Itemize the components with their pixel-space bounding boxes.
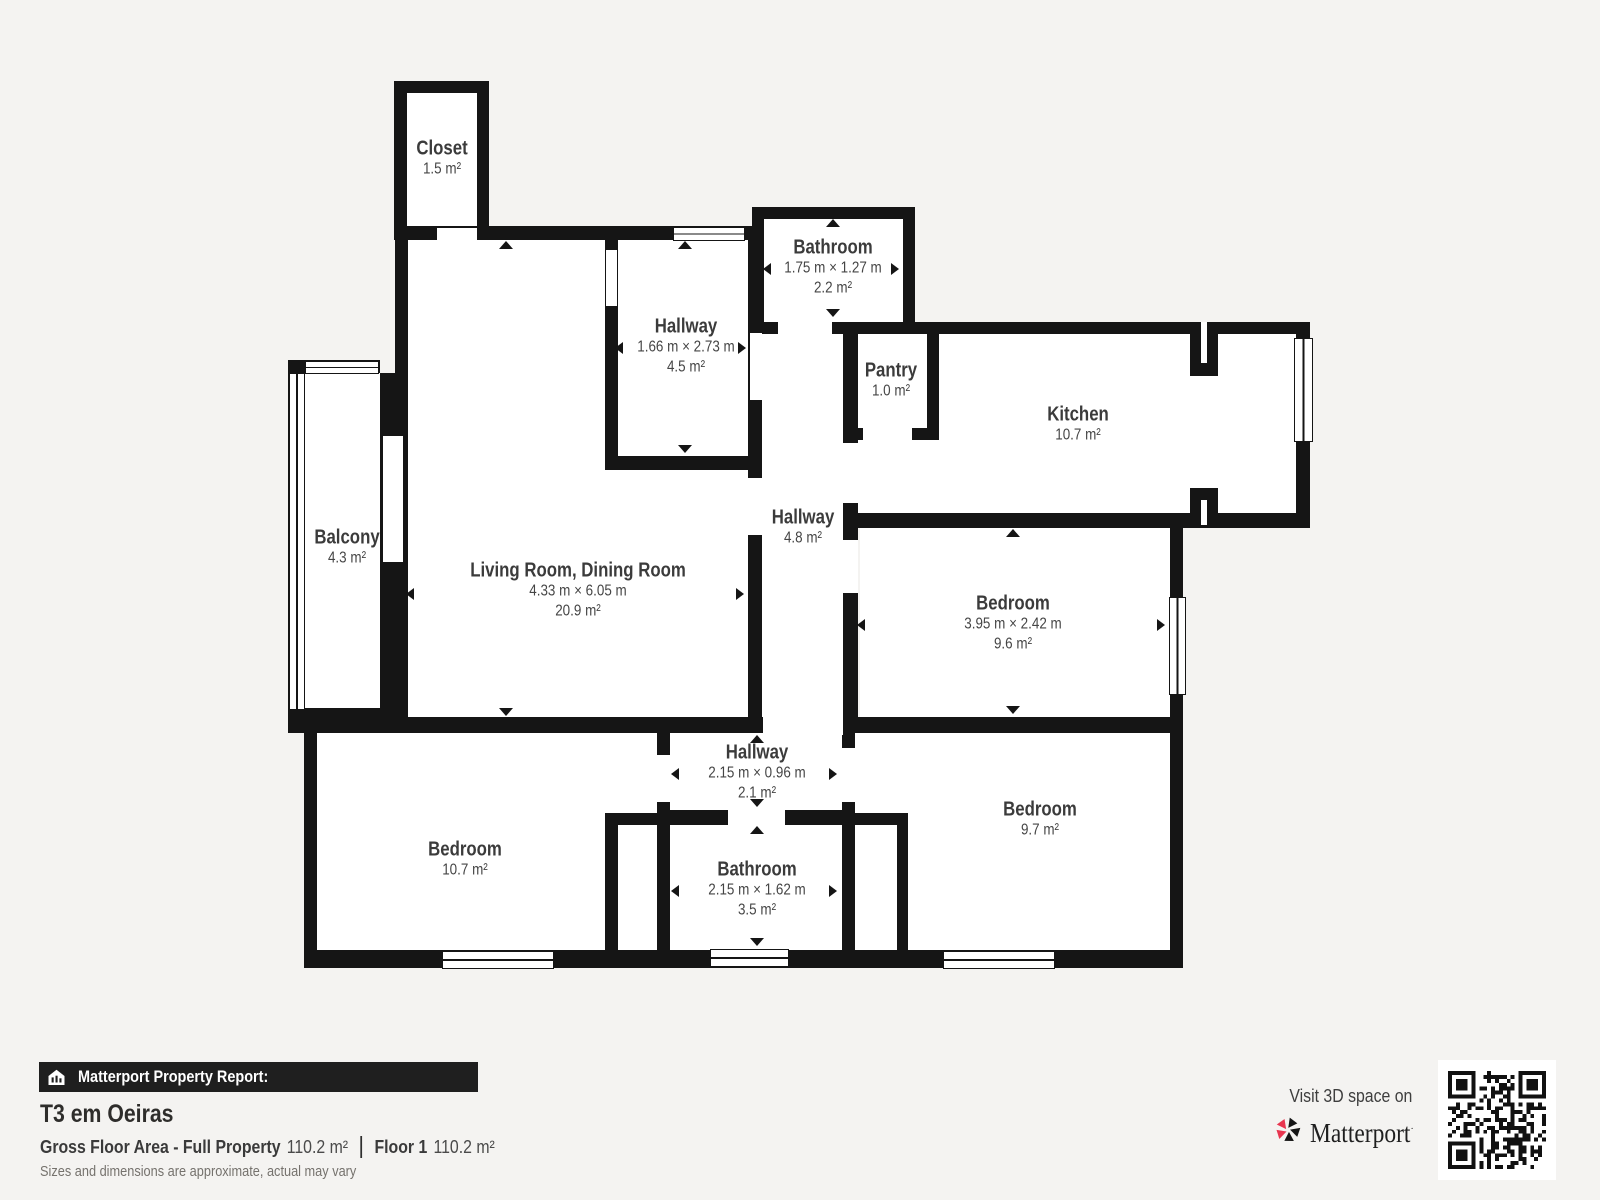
door-opening (763, 715, 843, 735)
room-dims: 4.33 m × 6.05 m (470, 582, 686, 602)
qr-code-image (1448, 1071, 1546, 1169)
room-area: 20.9 m² (470, 602, 686, 621)
measure-arrow-d-icon (750, 799, 764, 807)
disclaimer-text: Sizes and dimensions are approximate, ac… (40, 1164, 356, 1180)
door-opening (778, 322, 832, 334)
door-opening (1201, 322, 1207, 363)
matterport-pinwheel-icon (1273, 1115, 1303, 1145)
wall (304, 717, 1183, 733)
report-bar-label: Matterport Property Report: (78, 1067, 268, 1087)
matterport-floorplan-page: Closet1.5 m²Bathroom1.75 m × 1.27 m2.2 m… (0, 0, 1600, 1200)
room-area: 9.7 m² (1003, 821, 1077, 840)
room-label-bedroom-right: Bedroom9.7 m² (1003, 799, 1077, 840)
wall (394, 81, 489, 93)
door-opening (657, 755, 670, 802)
room-label-bathroom-top: Bathroom1.75 m × 1.27 m2.2 m² (784, 237, 881, 298)
measure-arrow-l-icon (763, 263, 771, 275)
measure-arrow-l-icon (671, 768, 679, 780)
room-dims: 3.95 m × 2.42 m (964, 615, 1061, 635)
measure-arrow-d-icon (826, 309, 840, 317)
room-name: Kitchen (1047, 404, 1109, 426)
property-title: T3 em Oeiras (40, 1100, 173, 1129)
measure-arrow-u-icon (499, 241, 513, 249)
room-area: 10.7 m² (1047, 426, 1109, 445)
room-name: Bedroom (428, 839, 502, 861)
room-name: Hallway (708, 742, 805, 764)
room-area: 1.5 m² (416, 160, 467, 179)
room-name: Hallway (772, 507, 835, 529)
room-area: 2.2 m² (784, 279, 881, 298)
window (442, 951, 554, 969)
room-label-closet: Closet1.5 m² (416, 138, 467, 179)
wall (605, 456, 762, 470)
wall (394, 81, 407, 240)
measure-arrow-u-icon (1006, 529, 1020, 537)
wall (843, 513, 1310, 528)
room-label-balcony: Balcony4.3 m² (314, 527, 379, 568)
measure-arrow-r-icon (736, 588, 744, 600)
floor-label: Floor 1 (374, 1137, 427, 1158)
house-chart-icon (47, 1069, 66, 1086)
room-name: Bathroom (708, 859, 805, 881)
room-label-hallway-top: Hallway1.66 m × 2.73 m4.5 m² (637, 316, 734, 377)
measure-arrow-l-icon (857, 619, 865, 631)
room-label-hallway-bottom: Hallway2.15 m × 0.96 m2.1 m² (708, 742, 805, 803)
window (289, 373, 305, 710)
visit-3d-block: Visit 3D space on Matterport· (1240, 1086, 1462, 1148)
room-label-kitchen: Kitchen10.7 m² (1047, 404, 1109, 445)
measure-arrow-d-icon (750, 938, 764, 946)
wall (395, 240, 408, 373)
window (673, 227, 745, 241)
measure-arrow-u-icon (826, 219, 840, 227)
floor-plan: Closet1.5 m²Bathroom1.75 m × 1.27 m2.2 m… (0, 0, 1600, 1200)
room-area: 3.5 m² (708, 901, 805, 920)
measure-arrow-d-icon (678, 445, 692, 453)
measure-arrow-r-icon (829, 885, 837, 897)
gfa-label: Gross Floor Area - Full Property (40, 1137, 281, 1158)
wall (752, 322, 1310, 334)
measure-arrow-r-icon (891, 263, 899, 275)
door-opening (606, 250, 617, 306)
room-area: 9.6 m² (964, 635, 1061, 654)
measure-arrow-d-icon (1006, 706, 1020, 714)
room-label-living-dining: Living Room, Dining Room4.33 m × 6.05 m2… (470, 560, 686, 621)
measure-arrow-u-icon (750, 826, 764, 834)
floor-value: 110.2 m² (433, 1137, 494, 1158)
room-label-bedroom-left: Bedroom10.7 m² (428, 839, 502, 880)
measure-arrow-u-icon (678, 241, 692, 249)
measure-arrow-r-icon (829, 768, 837, 780)
measure-arrow-l-icon (615, 342, 623, 354)
door-opening (728, 810, 785, 825)
visit-3d-text: Visit 3D space on (1290, 1086, 1413, 1107)
wall (752, 207, 915, 219)
room-dims: 1.75 m × 1.27 m (784, 259, 881, 279)
room-label-bedroom-middle: Bedroom3.95 m × 2.42 m9.6 m² (964, 593, 1061, 654)
room-label-hallway-center: Hallway4.8 m² (772, 507, 835, 548)
room-label-pantry: Pantry1.0 m² (865, 360, 917, 401)
measure-arrow-d-icon (499, 708, 513, 716)
door-opening (383, 436, 403, 562)
window (305, 361, 379, 374)
measure-arrow-r-icon (738, 342, 746, 354)
measure-arrow-r-icon (1157, 619, 1165, 631)
door-opening (1201, 500, 1207, 525)
room-name: Living Room, Dining Room (470, 560, 686, 582)
room-name: Pantry (865, 360, 917, 382)
room-area: 4.8 m² (772, 529, 835, 548)
floor-area-info: Gross Floor Area - Full Property 110.2 m… (40, 1136, 495, 1158)
room-area: 10.7 m² (428, 861, 502, 880)
room-name: Hallway (637, 316, 734, 338)
room-dims: 1.66 m × 2.73 m (637, 338, 734, 358)
room-area: 1.0 m² (865, 382, 917, 401)
matterport-logo: Matterport· (1273, 1114, 1429, 1148)
room-area: 4.3 m² (314, 549, 379, 568)
room-dims: 2.15 m × 1.62 m (708, 881, 805, 901)
window (710, 949, 789, 967)
measure-arrow-l-icon (671, 885, 679, 897)
door-opening (843, 540, 858, 593)
measure-arrow-u-icon (750, 735, 764, 743)
gfa-value: 110.2 m² (287, 1137, 348, 1158)
wall (897, 813, 908, 950)
room-name: Bedroom (1003, 799, 1077, 821)
wall (605, 813, 618, 950)
door-opening (843, 443, 858, 503)
room-name: Closet (416, 138, 467, 160)
door-opening (863, 427, 912, 440)
qr-code (1438, 1060, 1556, 1180)
room-area: 4.5 m² (637, 358, 734, 377)
wall (304, 717, 317, 968)
wall (927, 334, 939, 440)
room-name: Bathroom (784, 237, 881, 259)
door-opening (748, 478, 762, 535)
room-floor (618, 825, 657, 950)
window (1169, 597, 1186, 695)
wall (903, 207, 915, 334)
door-opening (842, 748, 855, 802)
room-name: Bedroom (964, 593, 1061, 615)
wall (477, 81, 489, 240)
report-bar: Matterport Property Report: (39, 1062, 478, 1092)
window (1294, 338, 1313, 442)
divider (360, 1136, 362, 1158)
door-opening (750, 333, 762, 400)
measure-arrow-l-icon (406, 588, 414, 600)
room-label-bathroom-bottom: Bathroom2.15 m × 1.62 m3.5 m² (708, 859, 805, 920)
door-opening (437, 228, 477, 240)
wall (1170, 525, 1183, 968)
room-name: Balcony (314, 527, 379, 549)
matterport-wordmark: Matterport· (1310, 1114, 1414, 1148)
window (943, 951, 1055, 969)
room-dims: 2.15 m × 0.96 m (708, 764, 805, 784)
